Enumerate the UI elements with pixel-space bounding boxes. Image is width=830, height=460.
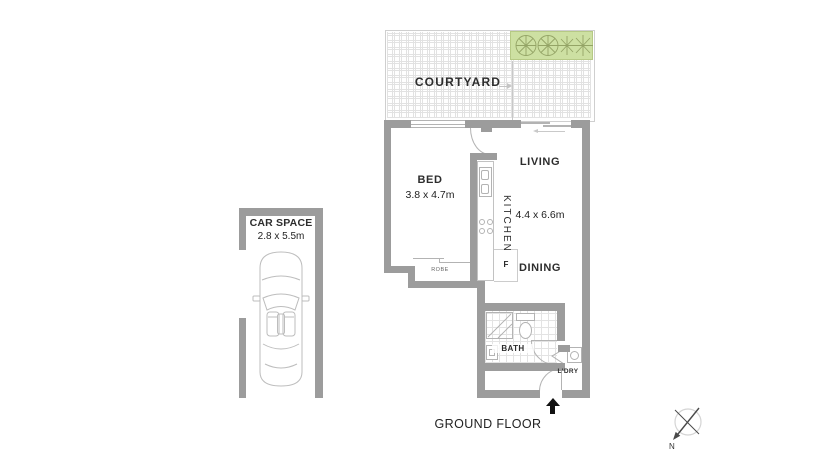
cooktop-burner-icon	[487, 219, 493, 225]
floor-plan: COURTYARD F ROBE	[0, 0, 830, 460]
wall-bottom-b	[562, 390, 590, 398]
wall-laundry-top	[558, 345, 570, 352]
carspace-wall-top	[239, 208, 323, 216]
carspace-dimensions: 2.8 x 5.5m	[241, 231, 321, 242]
slide-arrow-icon	[533, 129, 538, 133]
kitchen-label: KITCHEN	[498, 179, 512, 269]
washing-machine-drum-icon	[570, 351, 579, 360]
wall-kitchen-west	[470, 158, 477, 288]
wall-bottom-a	[477, 390, 540, 398]
laundry-label: L'DRY	[550, 368, 586, 375]
door-hinge-tab	[481, 127, 492, 132]
toilet-cistern-icon	[516, 313, 535, 321]
sliding-door-track	[538, 131, 565, 132]
sliding-door-panel-1	[521, 122, 550, 124]
cooktop-burner-icon	[487, 228, 493, 234]
car-icon	[250, 246, 312, 391]
robe-slider-joint	[439, 258, 440, 263]
cooktop-burner-icon	[479, 219, 485, 225]
living-dining-dimensions: 4.4 x 6.6m	[496, 209, 584, 221]
bed-label: BED	[392, 174, 468, 186]
robe-label: ROBE	[418, 267, 462, 273]
bed-window	[411, 120, 465, 128]
toilet-bowl-icon	[519, 322, 532, 339]
carspace-label: CAR SPACE	[241, 217, 321, 229]
floor-title: GROUND FLOOR	[398, 417, 578, 431]
carspace-wall-left-lower	[239, 318, 246, 398]
cooktop-burner-icon	[479, 228, 485, 234]
carspace-wall-left-upper	[239, 208, 246, 250]
courtyard-label: COURTYARD	[406, 75, 510, 89]
wall-bath-right	[557, 303, 565, 341]
wall-bath-left	[477, 311, 485, 398]
sink-bowl-bottom	[481, 184, 489, 194]
courtyard-divider	[512, 61, 513, 120]
bed-dimensions: 3.8 x 4.7m	[386, 189, 474, 201]
bath-label: BATH	[492, 344, 534, 353]
plants-icon	[510, 31, 593, 60]
compass-north-label: N	[669, 442, 675, 451]
compass-icon: N	[664, 398, 710, 452]
wall-top-b	[465, 120, 521, 128]
dining-label: DINING	[496, 262, 584, 274]
wall-bath-top	[477, 303, 565, 311]
bed-door-arc	[470, 128, 490, 155]
living-label: LIVING	[496, 156, 584, 168]
shower-lines-icon	[486, 312, 513, 339]
entry-arrow-stem	[550, 405, 555, 414]
sink-bowl-top	[481, 170, 489, 180]
sliding-door-panel-2	[543, 125, 571, 127]
robe-slider-line-2	[439, 262, 471, 263]
